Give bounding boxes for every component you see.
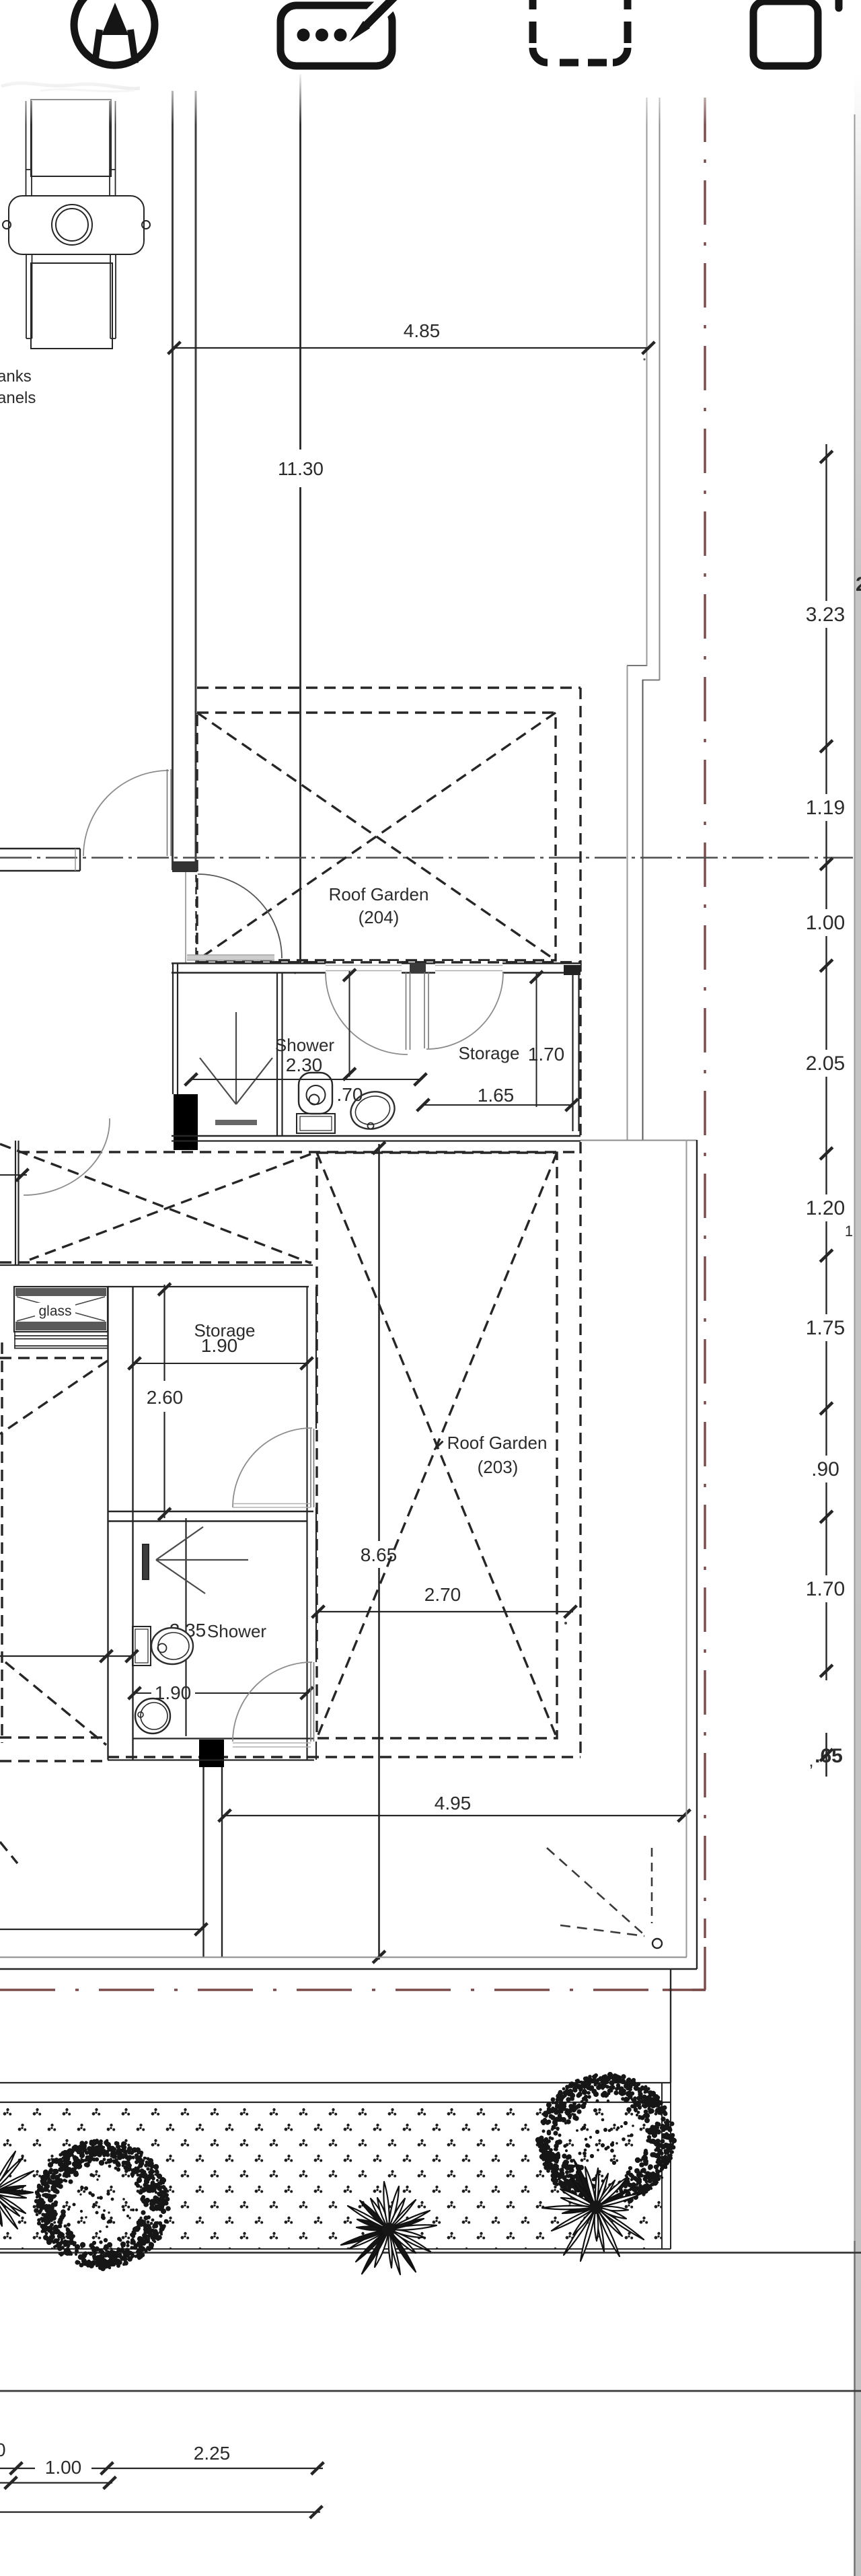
svg-text:Shower: Shower xyxy=(275,1035,334,1055)
svg-text:1.90: 1.90 xyxy=(201,1335,238,1356)
svg-text:2.60: 2.60 xyxy=(147,1387,184,1408)
svg-text:8.65: 8.65 xyxy=(361,1544,398,1565)
svg-text:Shower: Shower xyxy=(207,1621,266,1641)
svg-text:Storage: Storage xyxy=(458,1043,519,1063)
svg-text:1: 1 xyxy=(845,1223,853,1240)
svg-text:Tanks: Tanks xyxy=(0,367,32,386)
svg-text:.65: .65 xyxy=(815,1745,843,1767)
svg-text:1.70: 1.70 xyxy=(806,1578,845,1600)
svg-text:Panels: Panels xyxy=(0,389,36,407)
svg-text:2.05: 2.05 xyxy=(806,1052,845,1075)
svg-text:1.19: 1.19 xyxy=(806,797,845,819)
svg-text:2.25: 2.25 xyxy=(194,2443,231,2464)
svg-text:glass: glass xyxy=(38,1303,71,1319)
svg-text:4.95: 4.95 xyxy=(435,1793,472,1814)
svg-text:(203): (203) xyxy=(478,1457,519,1477)
svg-text:3.23: 3.23 xyxy=(806,604,845,626)
svg-text:.70: .70 xyxy=(337,1084,363,1105)
svg-text:11.30: 11.30 xyxy=(278,458,324,479)
svg-text:1.00: 1.00 xyxy=(806,912,845,934)
svg-text:1.20: 1.20 xyxy=(806,1197,845,1219)
svg-text:,: , xyxy=(809,1750,813,1770)
svg-text:1.65: 1.65 xyxy=(478,1085,515,1106)
svg-text:0: 0 xyxy=(0,2439,6,2460)
svg-text:.90: .90 xyxy=(811,1458,839,1480)
svg-text:1.00: 1.00 xyxy=(45,2457,82,2478)
svg-text:2.70: 2.70 xyxy=(424,1584,461,1605)
svg-text:(204): (204) xyxy=(359,907,400,927)
svg-text:2: 2 xyxy=(856,573,861,596)
svg-text:Roof Garden: Roof Garden xyxy=(329,884,429,904)
svg-text:1.70: 1.70 xyxy=(528,1044,565,1065)
svg-text:4.85: 4.85 xyxy=(404,320,441,341)
svg-text:1.75: 1.75 xyxy=(806,1317,845,1339)
svg-text:Roof Garden: Roof Garden xyxy=(447,1433,548,1453)
